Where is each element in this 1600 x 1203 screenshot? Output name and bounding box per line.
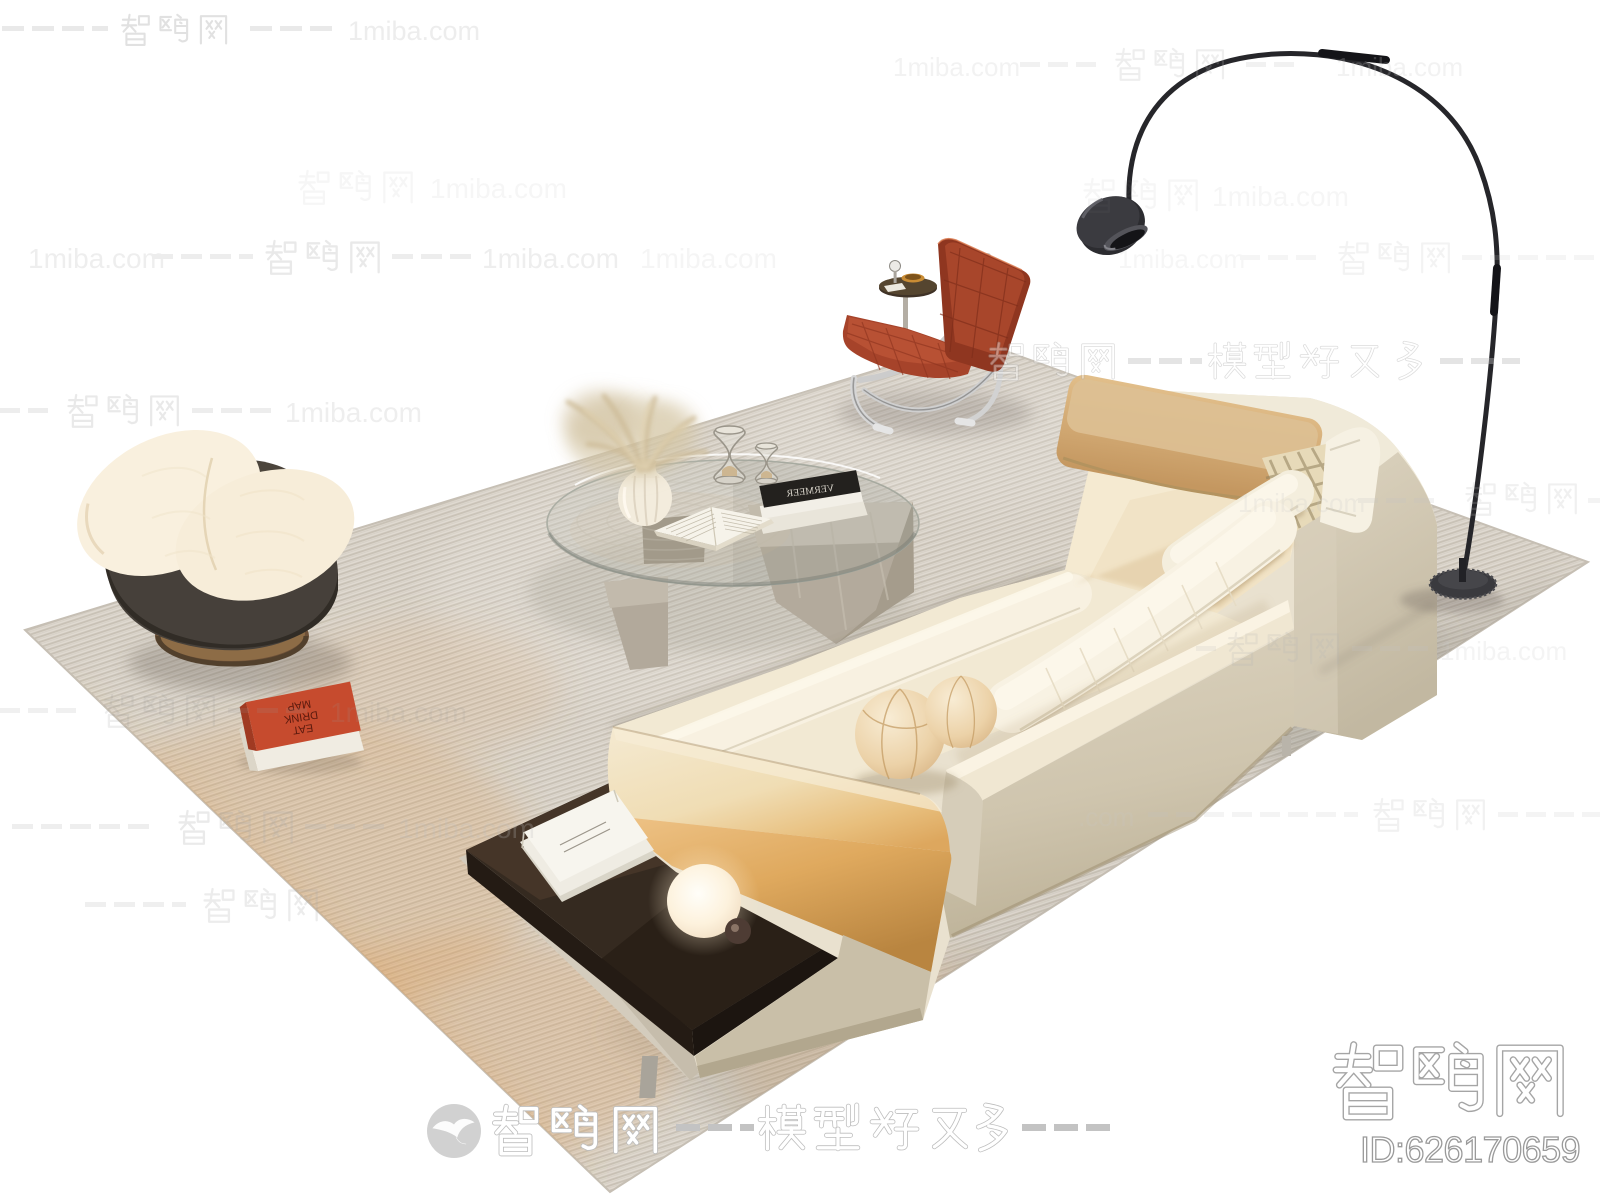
svg-text:1miba.com: 1miba.com — [640, 243, 777, 274]
svg-text:1miba.com: 1miba.com — [1440, 636, 1567, 666]
svg-text:1miba.com: 1miba.com — [1336, 52, 1463, 82]
svg-text:.com: .com — [1078, 802, 1134, 832]
svg-text:1miba.com: 1miba.com — [1212, 181, 1349, 212]
svg-text:1miba.com: 1miba.com — [330, 697, 467, 728]
svg-text:1miba.com: 1miba.com — [28, 243, 165, 274]
svg-text:1miba.com: 1miba.com — [285, 397, 422, 428]
svg-text:ID:626170659: ID:626170659 — [1360, 1129, 1580, 1170]
svg-text:1miba.com: 1miba.com — [893, 52, 1020, 82]
svg-text:1miba.com: 1miba.com — [1118, 244, 1245, 274]
svg-text:1miba.com: 1miba.com — [348, 16, 480, 46]
svg-text:1miba.com: 1miba.com — [430, 173, 567, 204]
svg-text:1miba.com: 1miba.com — [1238, 488, 1365, 518]
svg-text:1miba.com: 1miba.com — [398, 813, 535, 844]
svg-text:1miba.com: 1miba.com — [482, 243, 619, 274]
